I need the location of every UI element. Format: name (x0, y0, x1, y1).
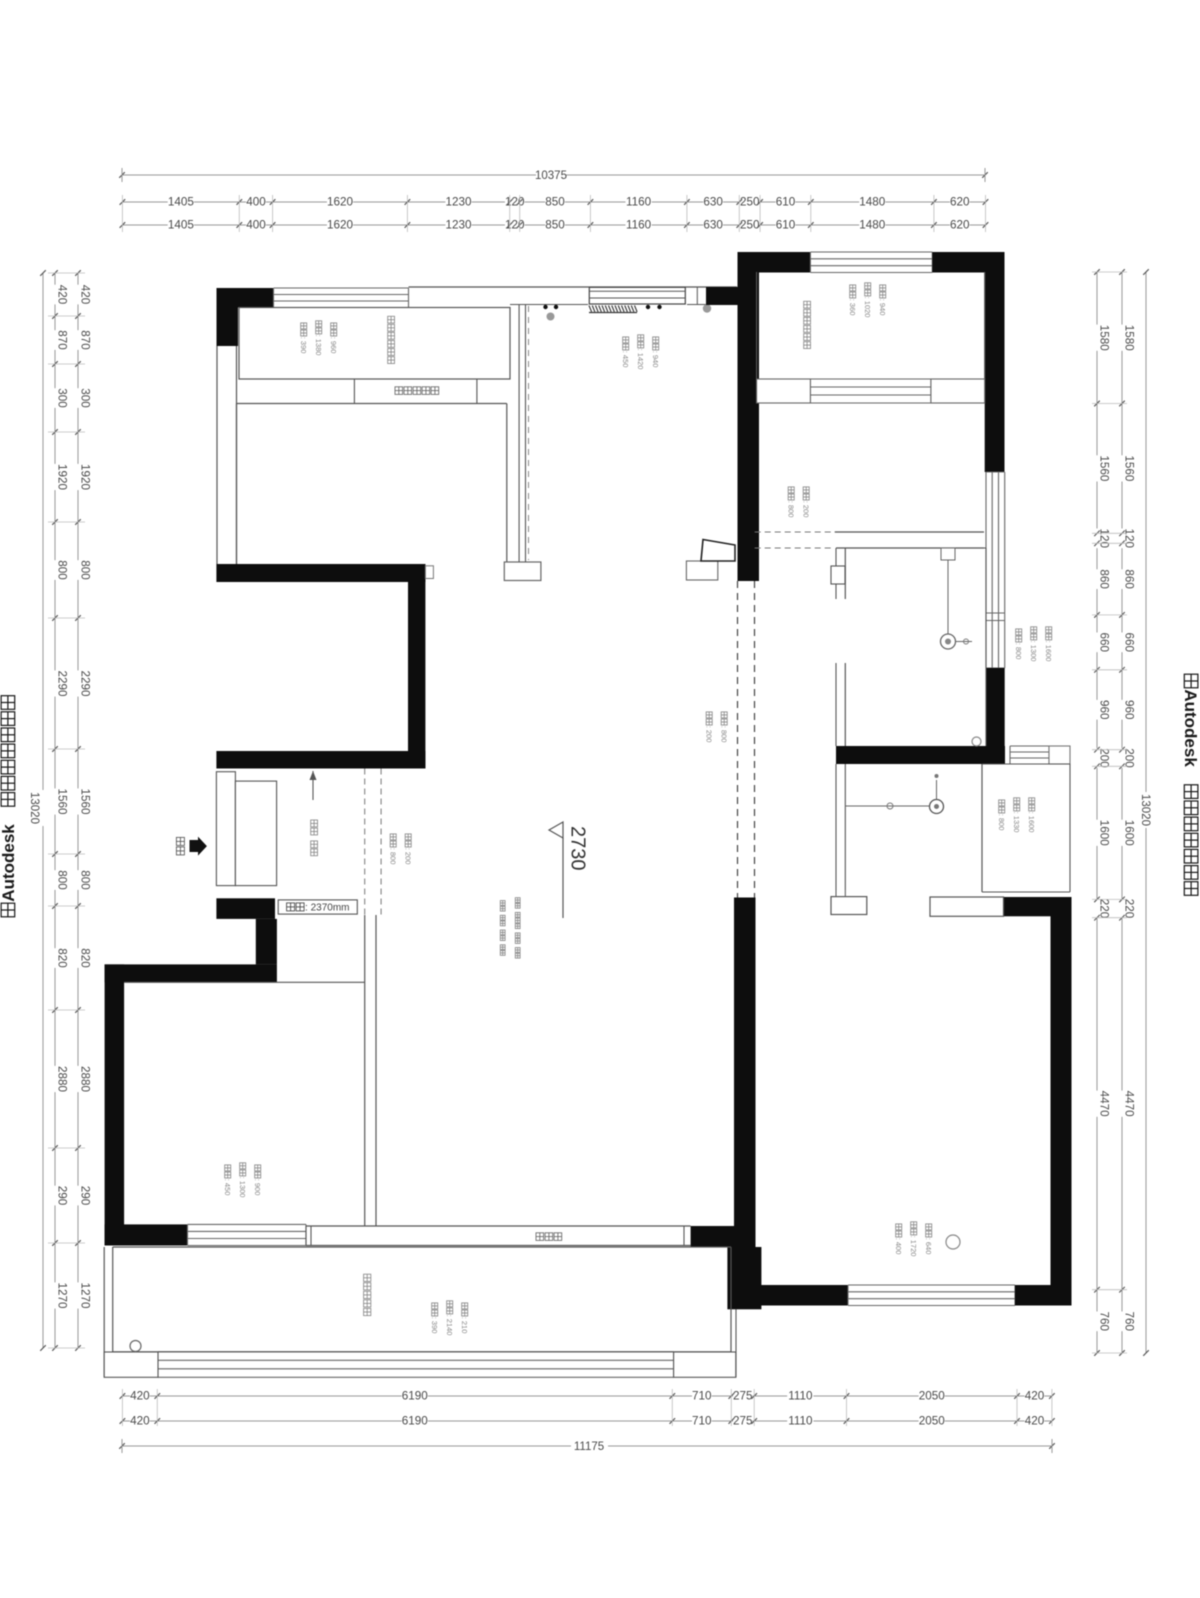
svg-text:1110: 1110 (788, 1415, 813, 1428)
svg-text:: 1600: : 1600 (1027, 812, 1036, 833)
svg-text:420: 420 (130, 1415, 150, 1428)
svg-text:660: 660 (1098, 633, 1111, 653)
svg-text:870: 870 (56, 330, 69, 350)
svg-text:6190: 6190 (402, 1390, 429, 1403)
svg-text:850: 850 (545, 219, 565, 232)
svg-text:2880: 2880 (79, 1066, 92, 1093)
svg-text:: 640: : 640 (924, 1238, 933, 1255)
svg-text:2880: 2880 (56, 1066, 69, 1093)
svg-text:420: 420 (130, 1390, 150, 1403)
svg-text:800: 800 (79, 560, 92, 580)
svg-text:: 1420: : 1420 (636, 349, 645, 370)
svg-text:760: 760 (1098, 1312, 1111, 1332)
svg-text:1620: 1620 (327, 196, 354, 209)
svg-text:200: 200 (1123, 748, 1136, 768)
svg-text:1230: 1230 (445, 196, 472, 209)
svg-text:420: 420 (79, 285, 92, 305)
svg-text:960: 960 (1098, 700, 1111, 720)
svg-text:: 960: : 960 (329, 337, 338, 354)
svg-text:1560: 1560 (1098, 455, 1111, 482)
svg-text:: 940: : 940 (878, 299, 887, 316)
svg-text:: 360: : 360 (848, 299, 857, 316)
svg-text:10375: 10375 (535, 170, 567, 182)
svg-text:1600: 1600 (1123, 820, 1136, 847)
svg-text:420: 420 (1025, 1415, 1045, 1428)
svg-text:4470: 4470 (1098, 1091, 1111, 1118)
svg-text:1160: 1160 (626, 196, 652, 209)
svg-text:960: 960 (1123, 700, 1136, 720)
svg-text:1560: 1560 (1123, 455, 1136, 482)
svg-text:: 800: : 800 (720, 726, 729, 743)
svg-text:1480: 1480 (859, 219, 886, 232)
svg-text:1580: 1580 (1098, 325, 1111, 352)
svg-text:760: 760 (1123, 1312, 1136, 1332)
svg-text:: 450: : 450 (223, 1179, 232, 1196)
svg-text:: 450: : 450 (621, 351, 630, 368)
svg-text:400: 400 (246, 196, 266, 209)
svg-text:: 390: : 390 (299, 337, 308, 354)
svg-text:2290: 2290 (79, 670, 92, 697)
svg-text:6190: 6190 (402, 1415, 429, 1428)
svg-text:2050: 2050 (919, 1415, 946, 1428)
svg-text:800: 800 (79, 870, 92, 890)
svg-text:: 1380: : 1380 (314, 335, 323, 356)
svg-text:: 200: : 200 (404, 848, 413, 865)
svg-text:1230: 1230 (445, 219, 472, 232)
svg-text:1560: 1560 (56, 788, 69, 815)
svg-text:2050: 2050 (919, 1390, 946, 1403)
svg-text:1270: 1270 (79, 1282, 92, 1309)
svg-text:: 800: : 800 (1014, 643, 1023, 660)
svg-text:: 2370mm: : 2370mm (305, 903, 349, 914)
svg-text:1480: 1480 (859, 196, 886, 209)
svg-text:: 940: : 940 (651, 351, 660, 368)
svg-text:120: 120 (505, 196, 525, 209)
svg-text:610: 610 (776, 196, 796, 209)
svg-text:1110: 1110 (788, 1390, 813, 1403)
svg-text:1560: 1560 (79, 788, 92, 815)
svg-text:11175: 11175 (574, 1441, 604, 1453)
svg-text:: 1330: : 1330 (1012, 812, 1021, 833)
svg-text:610: 610 (776, 219, 796, 232)
svg-text:1620: 1620 (327, 219, 354, 232)
svg-text:: 200: : 200 (802, 501, 811, 518)
svg-text:: 390: : 390 (430, 1317, 439, 1334)
svg-text:290: 290 (79, 1186, 92, 1206)
svg-text:: 200: : 200 (705, 726, 714, 743)
svg-text:: 2140: : 2140 (445, 1315, 454, 1336)
svg-text:1405: 1405 (168, 196, 195, 209)
svg-text:13020: 13020 (28, 792, 40, 824)
svg-text:820: 820 (79, 948, 92, 968)
svg-text:: 800: : 800 (997, 814, 1006, 831)
svg-text:400: 400 (246, 219, 266, 232)
svg-text:4470: 4470 (1123, 1091, 1136, 1118)
svg-text:630: 630 (703, 196, 723, 209)
svg-text:Autodesk: Autodesk (1181, 689, 1200, 767)
svg-text:2290: 2290 (56, 670, 69, 697)
svg-text:420: 420 (1025, 1390, 1045, 1403)
svg-text:: 1020: : 1020 (863, 297, 872, 318)
svg-text:: 1720: : 1720 (909, 1236, 918, 1257)
svg-text:630: 630 (703, 219, 723, 232)
svg-text:13020: 13020 (1139, 794, 1151, 826)
svg-text:275: 275 (733, 1390, 753, 1403)
svg-text:Autodesk: Autodesk (0, 824, 18, 902)
svg-text:200: 200 (1098, 748, 1111, 768)
svg-text:250: 250 (740, 196, 760, 209)
svg-text:660: 660 (1123, 633, 1136, 653)
svg-text:300: 300 (79, 388, 92, 408)
svg-text:120: 120 (505, 219, 525, 232)
svg-text:275: 275 (733, 1415, 753, 1428)
svg-text:1920: 1920 (56, 464, 69, 491)
svg-text:300: 300 (56, 388, 69, 408)
svg-text:1160: 1160 (626, 219, 652, 232)
svg-text:250: 250 (740, 219, 760, 232)
svg-text:: 1300: : 1300 (238, 1177, 247, 1198)
svg-text:620: 620 (950, 196, 970, 209)
svg-text:: 900: : 900 (253, 1179, 262, 1196)
svg-text:710: 710 (692, 1415, 712, 1428)
svg-text:1600: 1600 (1098, 820, 1111, 847)
svg-text:: 800: : 800 (389, 848, 398, 865)
svg-text:1920: 1920 (79, 464, 92, 491)
svg-text:: 210: : 210 (460, 1317, 469, 1334)
svg-text:860: 860 (1123, 569, 1136, 589)
svg-text:1580: 1580 (1123, 325, 1136, 352)
svg-text:420: 420 (56, 285, 69, 305)
svg-text:620: 620 (950, 219, 970, 232)
svg-text:: 800: : 800 (787, 501, 796, 518)
svg-text:2730: 2730 (567, 826, 589, 871)
svg-text:860: 860 (1098, 569, 1111, 589)
svg-text:800: 800 (56, 560, 69, 580)
svg-text:820: 820 (56, 948, 69, 968)
svg-text:: 1300: : 1300 (1029, 641, 1038, 662)
svg-text:1270: 1270 (56, 1282, 69, 1309)
svg-text:: 400: : 400 (894, 1238, 903, 1255)
svg-text:850: 850 (545, 196, 565, 209)
svg-text:870: 870 (79, 330, 92, 350)
svg-text:: 1600: : 1600 (1044, 641, 1053, 662)
svg-text:1405: 1405 (168, 219, 195, 232)
svg-text:710: 710 (692, 1390, 712, 1403)
svg-text:290: 290 (56, 1186, 69, 1206)
svg-text:800: 800 (56, 870, 69, 890)
